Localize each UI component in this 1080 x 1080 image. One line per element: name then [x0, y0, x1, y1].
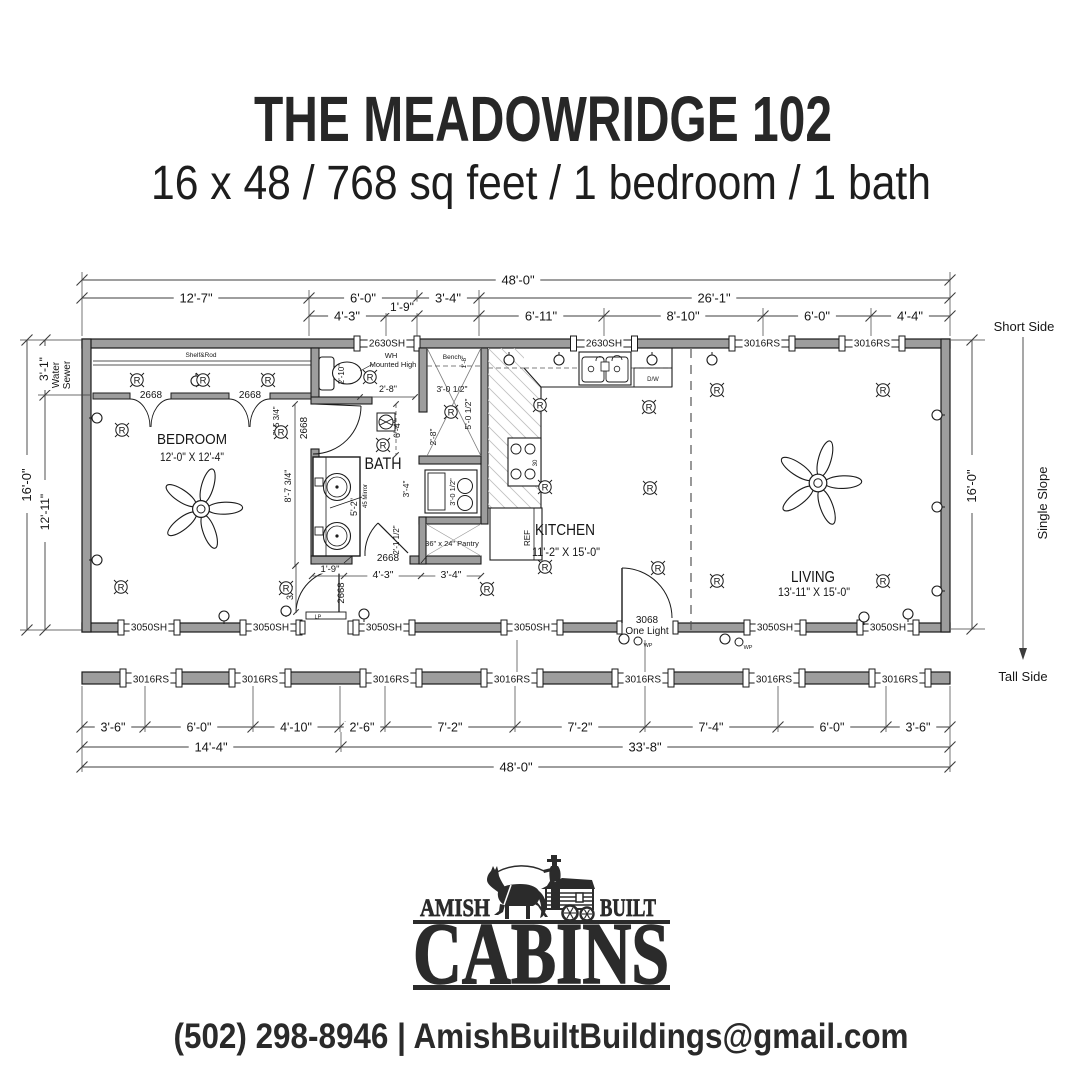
svg-text:48'-0": 48'-0": [501, 273, 535, 288]
svg-text:3016RS: 3016RS: [242, 675, 278, 686]
svg-text:R: R: [118, 582, 125, 593]
svg-text:3016RS: 3016RS: [494, 675, 530, 686]
svg-text:3068: 3068: [636, 615, 659, 626]
svg-text:REF: REF: [523, 530, 532, 546]
svg-text:2'-1 1/2": 2'-1 1/2": [392, 525, 401, 554]
svg-text:R: R: [646, 402, 653, 413]
svg-text:1'-9": 1'-9": [390, 300, 414, 314]
svg-text:16'-0": 16'-0": [964, 469, 979, 503]
svg-text:16'-0": 16'-0": [19, 468, 34, 502]
svg-text:36" x 24" Pantry: 36" x 24" Pantry: [425, 539, 479, 548]
svg-text:12'-0" X 12'-4": 12'-0" X 12'-4": [160, 450, 224, 464]
svg-text:2'-6": 2'-6": [350, 721, 375, 735]
svg-text:R: R: [647, 483, 654, 494]
svg-text:R: R: [542, 562, 549, 573]
svg-text:8'-7 3/4": 8'-7 3/4": [283, 470, 293, 503]
svg-text:1'-8": 1'-8": [461, 355, 468, 369]
svg-text:3'-4": 3'-4": [441, 569, 462, 581]
svg-text:3050SH: 3050SH: [870, 623, 906, 634]
svg-text:2668: 2668: [140, 390, 163, 401]
svg-text:4'-4": 4'-4": [897, 309, 923, 324]
svg-text:4'-3": 4'-3": [334, 309, 360, 324]
svg-text:26'-1": 26'-1": [697, 291, 731, 306]
svg-text:6'-4": 6'-4": [392, 420, 402, 438]
svg-text:2'-10": 2'-10": [337, 364, 346, 385]
svg-text:2668: 2668: [299, 416, 310, 439]
svg-text:KITCHEN: KITCHEN: [535, 522, 595, 539]
svg-text:R: R: [448, 407, 455, 418]
svg-text:R: R: [367, 372, 374, 383]
svg-text:8'-10": 8'-10": [666, 309, 700, 324]
svg-text:R: R: [714, 576, 721, 587]
svg-text:6'-0": 6'-0": [804, 309, 830, 324]
svg-text:LP: LP: [315, 615, 322, 621]
svg-text:2668: 2668: [239, 390, 262, 401]
svg-text:R: R: [283, 583, 290, 594]
svg-text:13'-11" X 15'-0": 13'-11" X 15'-0": [778, 585, 850, 599]
svg-text:BEDROOM: BEDROOM: [157, 431, 227, 448]
svg-text:3016RS: 3016RS: [744, 339, 780, 350]
svg-text:3016RS: 3016RS: [133, 675, 169, 686]
svg-text:33'-8": 33'-8": [628, 740, 662, 755]
svg-text:3016RS: 3016RS: [373, 675, 409, 686]
svg-text:R: R: [655, 563, 662, 574]
svg-text:LIVING: LIVING: [791, 569, 835, 586]
svg-text:3'-0 1/2": 3'-0 1/2": [448, 478, 457, 506]
svg-text:BATH: BATH: [365, 454, 402, 473]
svg-text:12'-7": 12'-7": [179, 291, 213, 306]
svg-text:7'-2": 7'-2": [438, 721, 463, 735]
svg-text:3'-1": 3'-1": [37, 357, 51, 381]
svg-text:3050SH: 3050SH: [253, 623, 289, 634]
svg-text:Tall Side: Tall Side: [998, 669, 1047, 684]
svg-text:4'-10": 4'-10": [280, 721, 312, 735]
svg-text:R: R: [880, 576, 887, 587]
svg-text:3'-6": 3'-6": [906, 721, 931, 735]
svg-text:R: R: [714, 385, 721, 396]
svg-text:R: R: [537, 400, 544, 411]
svg-text:2'-8": 2'-8": [428, 429, 438, 446]
svg-text:2630SH: 2630SH: [586, 339, 622, 350]
svg-text:3'-6": 3'-6": [101, 721, 126, 735]
svg-text:7'-2": 7'-2": [568, 721, 593, 735]
svg-text:R: R: [265, 375, 272, 386]
svg-text:3'-0 1/2": 3'-0 1/2": [436, 384, 467, 394]
svg-text:R: R: [542, 482, 549, 493]
svg-text:3'-4": 3'-4": [401, 481, 411, 498]
svg-text:Mounted High: Mounted High: [370, 360, 417, 369]
svg-text:2'-8": 2'-8": [379, 384, 397, 394]
svg-text:2668: 2668: [336, 582, 347, 603]
svg-text:3016RS: 3016RS: [854, 339, 890, 350]
svg-text:THE MEADOWRIDGE 102: THE MEADOWRIDGE 102: [254, 83, 832, 155]
svg-text:11'-2" X 15'-0": 11'-2" X 15'-0": [532, 545, 600, 559]
svg-text:R: R: [200, 375, 207, 386]
svg-text:R: R: [380, 440, 387, 451]
svg-text:Water: Water: [51, 361, 62, 388]
svg-text:6'-0": 6'-0": [350, 291, 376, 306]
svg-text:2630SH: 2630SH: [369, 339, 405, 350]
svg-text:WP: WP: [744, 645, 753, 651]
svg-text:3'-4": 3'-4": [435, 291, 461, 306]
svg-text:Sewer: Sewer: [62, 360, 73, 389]
svg-text:Bench: Bench: [443, 354, 462, 361]
svg-text:R: R: [880, 385, 887, 396]
svg-text:3016RS: 3016RS: [882, 675, 918, 686]
svg-text:WH: WH: [385, 351, 398, 360]
svg-text:D/W: D/W: [647, 377, 659, 383]
svg-text:R: R: [119, 425, 126, 436]
svg-text:1'-9": 1'-9": [321, 564, 340, 575]
svg-text:Short Side: Short Side: [994, 319, 1055, 334]
svg-text:3050SH: 3050SH: [131, 623, 167, 634]
svg-text:R: R: [484, 584, 491, 595]
svg-text:6'-0": 6'-0": [187, 721, 212, 735]
svg-text:30: 30: [533, 459, 539, 466]
svg-text:16 x 48 / 768 sq feet / 1 bedr: 16 x 48 / 768 sq feet / 1 bedroom / 1 ba…: [151, 157, 931, 210]
svg-text:R: R: [278, 427, 285, 438]
svg-text:3050SH: 3050SH: [757, 623, 793, 634]
svg-text:3016RS: 3016RS: [756, 675, 792, 686]
svg-text:12'-11": 12'-11": [38, 494, 52, 530]
svg-text:3016RS: 3016RS: [625, 675, 661, 686]
svg-text:14'-4": 14'-4": [194, 740, 228, 755]
svg-text:6'-11": 6'-11": [525, 309, 558, 324]
svg-text:3050SH: 3050SH: [366, 623, 402, 634]
svg-text:4'-3": 4'-3": [373, 569, 394, 581]
svg-text:Shelf&Rod: Shelf&Rod: [185, 352, 216, 359]
svg-text:(502) 298-8946 | AmishBuiltBui: (502) 298-8946 | AmishBuiltBuildings@gma…: [174, 1017, 909, 1056]
svg-text:7'-4": 7'-4": [699, 721, 724, 735]
svg-text:3050SH: 3050SH: [514, 623, 550, 634]
svg-text:Single Slope: Single Slope: [1035, 467, 1050, 540]
svg-text:6'-0": 6'-0": [820, 721, 845, 735]
svg-text:45 Mirror: 45 Mirror: [363, 484, 369, 508]
svg-text:One Light: One Light: [625, 626, 669, 637]
svg-text:R: R: [134, 375, 141, 386]
svg-text:5'-0 1/2": 5'-0 1/2": [463, 398, 473, 429]
svg-text:48'-0": 48'-0": [499, 760, 533, 775]
